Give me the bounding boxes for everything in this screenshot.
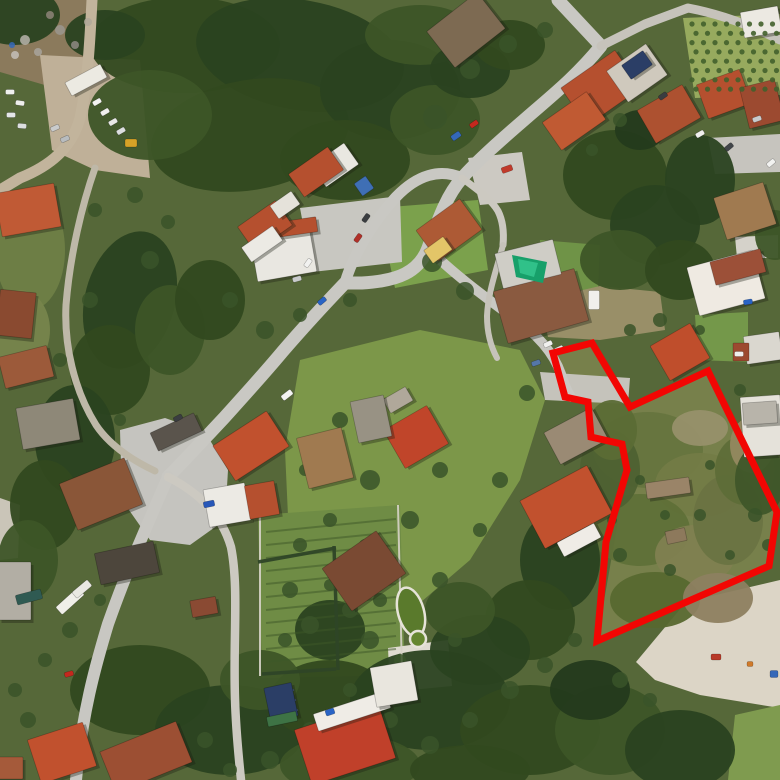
orchard-tree — [762, 31, 767, 36]
tree — [8, 683, 22, 697]
orchard-tree — [716, 31, 721, 36]
tree — [613, 548, 627, 562]
tree — [705, 460, 715, 470]
garden-pond-round — [410, 631, 426, 647]
tree — [568, 633, 582, 647]
orchard-tree — [758, 21, 763, 26]
tree — [88, 203, 102, 217]
orchard-tree — [770, 21, 775, 26]
tree — [256, 321, 274, 339]
grass-corner — [728, 705, 780, 780]
tree — [613, 113, 627, 127]
orchard-tree — [689, 77, 694, 82]
tree — [197, 732, 213, 748]
orchard-tree — [712, 59, 717, 64]
orchard-tree — [701, 59, 706, 64]
tree — [293, 308, 307, 322]
orchard-tree — [739, 87, 744, 92]
debris-dot — [55, 25, 65, 35]
tree — [323, 513, 337, 527]
car — [15, 100, 25, 106]
orchard-tree — [747, 77, 752, 82]
tree — [223, 763, 237, 777]
orchard-tree — [705, 31, 710, 36]
tree — [499, 35, 517, 53]
orchard-tree — [770, 77, 775, 82]
orchard-tree — [758, 59, 763, 64]
orchard-tree — [770, 40, 775, 45]
tree — [293, 538, 307, 552]
orchard-tree — [693, 49, 698, 54]
tree-cluster — [672, 410, 728, 446]
tree — [62, 622, 78, 638]
orchard-tree — [724, 40, 729, 45]
tree-cluster — [550, 660, 630, 720]
debris-dot — [71, 41, 79, 49]
orchard-tree — [701, 21, 706, 26]
tree — [343, 293, 357, 307]
orchard-tree — [693, 87, 698, 92]
tree-cluster — [88, 70, 212, 160]
house-roof — [370, 661, 418, 708]
orchard-tree — [712, 77, 717, 82]
car — [125, 139, 137, 147]
house-roof — [0, 289, 36, 339]
orchard-tree — [689, 40, 694, 45]
tree-cluster — [65, 10, 145, 60]
orchard-tree — [751, 49, 756, 54]
tree — [501, 681, 519, 699]
aerial-photo — [0, 0, 780, 780]
orchard-tree — [728, 68, 733, 73]
orchard-tree — [774, 31, 779, 36]
orchard-tree — [735, 77, 740, 82]
car — [735, 352, 744, 357]
tree — [653, 313, 667, 327]
orchard-tree — [774, 49, 779, 54]
house-roof — [0, 562, 31, 620]
tree — [94, 594, 106, 606]
tree — [725, 550, 735, 560]
tree — [301, 616, 319, 634]
tree — [586, 144, 598, 156]
tree — [278, 633, 292, 647]
car — [770, 671, 778, 678]
orchard-tree — [689, 21, 694, 26]
tree — [114, 414, 126, 426]
tree — [332, 412, 348, 428]
orchard-tree — [724, 59, 729, 64]
tree — [360, 470, 380, 490]
tree — [492, 472, 508, 488]
orchard-tree — [689, 59, 694, 64]
tree — [82, 292, 98, 308]
debris-dot — [84, 18, 92, 26]
tree — [423, 105, 447, 129]
car — [711, 654, 721, 660]
car — [747, 662, 753, 667]
orchard-tree — [747, 59, 752, 64]
tree — [456, 282, 474, 300]
orchard-tree — [728, 49, 733, 54]
tree — [127, 187, 143, 203]
tree — [448, 633, 462, 647]
car — [6, 90, 15, 95]
tree — [748, 508, 762, 522]
orchard-tree — [751, 87, 756, 92]
orchard-tree — [705, 68, 710, 73]
tree — [432, 462, 448, 478]
orchard-tree — [735, 21, 740, 26]
orchard-tree — [693, 68, 698, 73]
tree — [282, 582, 298, 598]
house-roof — [0, 757, 23, 779]
car — [17, 123, 26, 129]
tree — [141, 251, 159, 269]
orchard-tree — [701, 77, 706, 82]
orchard-tree — [774, 87, 779, 92]
orchard-tree — [712, 40, 717, 45]
tree — [261, 751, 279, 769]
tree — [343, 683, 357, 697]
debris-dot — [11, 51, 19, 59]
orchard-tree — [747, 40, 752, 45]
tree — [612, 672, 628, 688]
orchard-tree — [693, 31, 698, 36]
orchard-tree — [762, 49, 767, 54]
orchard-tree — [705, 49, 710, 54]
tree — [161, 215, 175, 229]
orchard-tree — [728, 87, 733, 92]
orchard-tree — [739, 31, 744, 36]
house-roof — [244, 481, 279, 520]
orchard-tree — [751, 31, 756, 36]
tree — [537, 657, 553, 673]
tree — [694, 509, 706, 521]
debris-dot — [34, 48, 42, 56]
orchard-tree — [774, 68, 779, 73]
orchard-tree — [716, 49, 721, 54]
orchard-tree — [712, 21, 717, 26]
orchard-tree — [751, 68, 756, 73]
tree — [473, 523, 487, 537]
orchard-tree — [724, 21, 729, 26]
tree — [222, 292, 238, 308]
tree — [432, 572, 448, 588]
tree — [635, 475, 645, 485]
orchard-tree — [770, 59, 775, 64]
orchard-tree — [758, 40, 763, 45]
car — [589, 291, 600, 310]
tree — [38, 653, 52, 667]
orchard-tree — [724, 77, 729, 82]
aerial-photo-canvas — [0, 0, 780, 780]
tree — [537, 22, 553, 38]
orchard-tree — [762, 68, 767, 73]
orchard-tree — [762, 87, 767, 92]
orchard-tree — [758, 77, 763, 82]
tree — [643, 693, 657, 707]
tree — [624, 324, 636, 336]
house-roof — [742, 401, 777, 425]
tree — [519, 385, 535, 401]
orchard-tree — [701, 40, 706, 45]
orchard-tree — [735, 40, 740, 45]
debris-dot — [9, 42, 15, 48]
orchard-tree — [735, 59, 740, 64]
tree — [664, 564, 676, 576]
tree — [462, 712, 478, 728]
tree — [660, 510, 670, 520]
orchard-tree — [739, 68, 744, 73]
orchard-tree — [728, 31, 733, 36]
orchard-tree — [716, 68, 721, 73]
tree — [421, 736, 439, 754]
tree — [401, 511, 419, 529]
orchard-tree — [739, 49, 744, 54]
tree — [734, 384, 746, 396]
tree — [361, 631, 379, 649]
debris-dot — [20, 35, 30, 45]
tree — [20, 712, 36, 728]
orchard-tree — [747, 21, 752, 26]
orchard-tree — [705, 87, 710, 92]
tree-cluster — [425, 582, 495, 638]
tree — [53, 353, 67, 367]
orchard-tree — [716, 87, 721, 92]
debris-dot — [46, 11, 54, 19]
car — [7, 113, 16, 118]
